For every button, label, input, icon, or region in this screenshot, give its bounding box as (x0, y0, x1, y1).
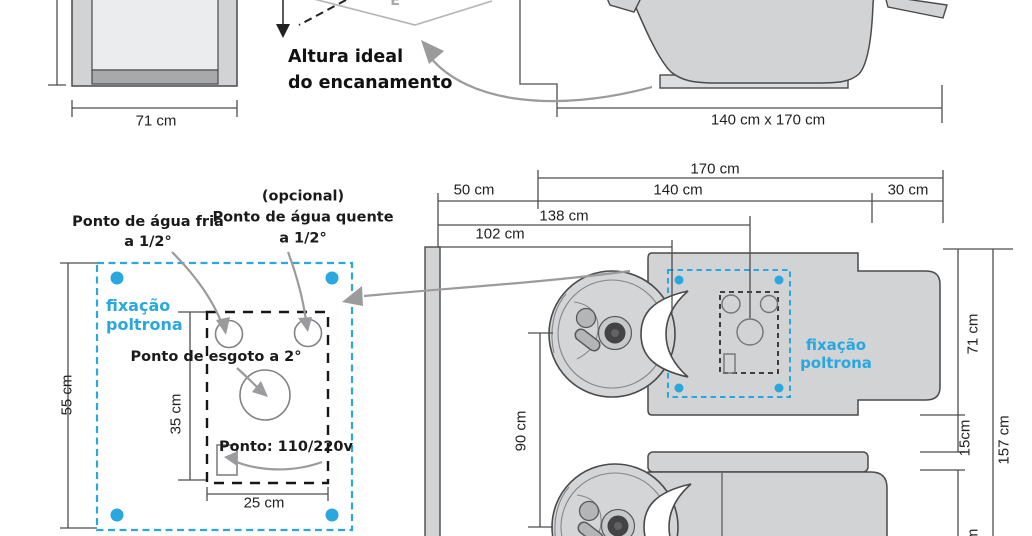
dim-157-label: 157 cm (996, 415, 1013, 464)
floor-diamond (310, 0, 492, 25)
dim-170-label: 170 cm (690, 161, 739, 178)
chair2-backrest (648, 452, 868, 472)
dim-25-label: 25 cm (244, 495, 285, 512)
power-label: Ponto: 110/220v (219, 437, 353, 457)
plumbing-note-graphics (276, 0, 492, 38)
dim-102-label: 102 cm (475, 226, 524, 243)
diagram-linework (0, 0, 1032, 536)
hot-water-label: (opcional) Ponto de água quente a 1/2° (212, 187, 393, 250)
dim-15-label: 15cm (957, 420, 974, 457)
installation-diagram: 71 cm Altura ideal do encanamento E 140 … (0, 0, 1032, 536)
chair-silhouette (520, 0, 947, 123)
dim-30-label: 30 cm (888, 182, 929, 199)
dashed-pointer (299, 0, 346, 25)
plumbing-note-line2: do encanamento (288, 70, 452, 96)
seat-bar (92, 70, 218, 84)
drain-label: Ponto de esgoto a 2° (130, 347, 301, 367)
height-dimension-line (48, 0, 66, 85)
dim-90-label: 90 cm (513, 411, 530, 452)
front-width-label: 71 cm (136, 113, 177, 130)
dim-71-top-label: 71 cm (965, 314, 982, 355)
dim-138-label: 138 cm (539, 208, 588, 225)
chair1-body (648, 253, 940, 415)
footprint-label: 140 cm x 170 cm (711, 112, 825, 129)
plumbing-note-line1: Altura ideal (288, 44, 452, 70)
chair2-body (648, 472, 887, 536)
right-armrest (885, 0, 947, 18)
plumbing-note: Altura ideal do encanamento (288, 44, 452, 96)
floor-marker-e: E (390, 0, 400, 9)
dim-55-label: 55 cm (59, 375, 76, 416)
dim-140-label: 140 cm (653, 182, 702, 199)
fixation-detail (60, 252, 352, 530)
dim-50-label: 50 cm (454, 182, 495, 199)
fixation-label-plan: fixação poltrona (800, 336, 872, 372)
down-arrowhead (276, 24, 290, 38)
fixation-label-detail: fixação poltrona (106, 296, 183, 334)
cold-water-label: Ponto de água fria a 1/2° (72, 212, 224, 252)
dim-71-bottom-label: 71 cm (965, 529, 982, 536)
front-view (48, 0, 237, 117)
dim-35-label: 35 cm (168, 394, 185, 435)
